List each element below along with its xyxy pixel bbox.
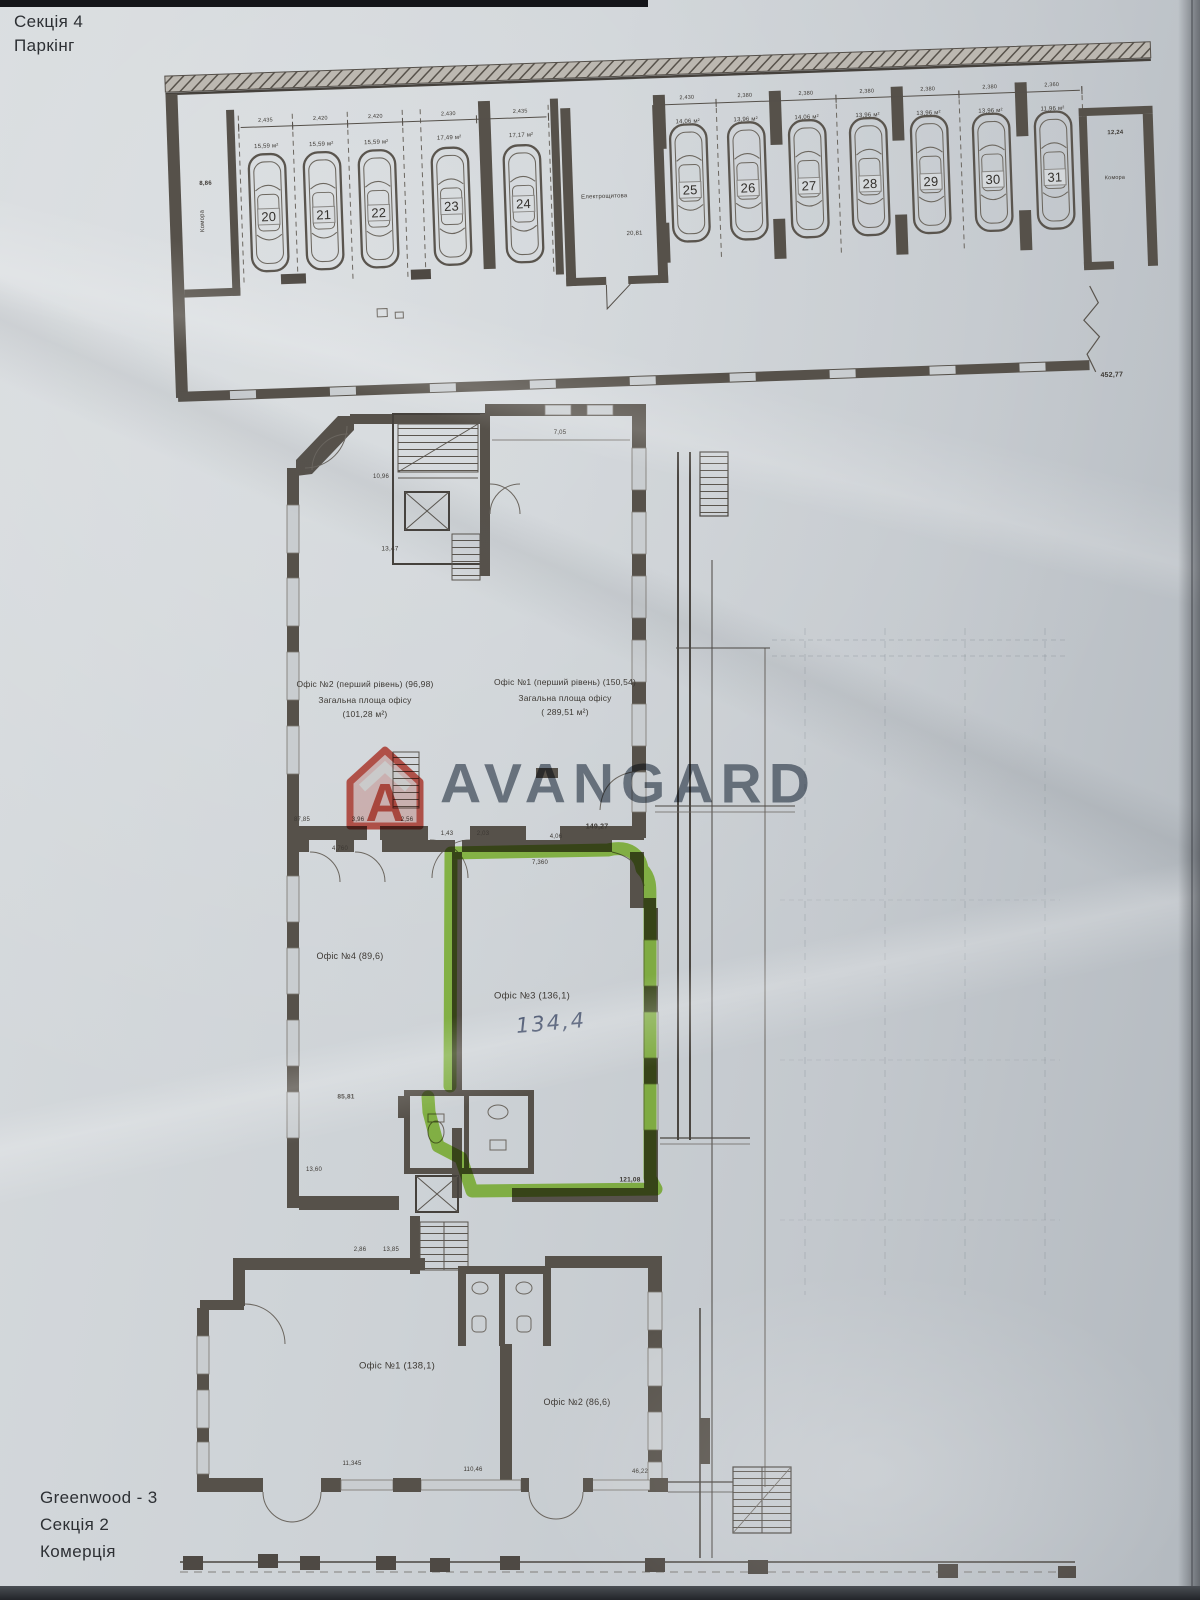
dim-mid-bottom-right: 121,08 [619,1177,640,1184]
header-section: Секція 4 [14,12,83,32]
footer-section: Секція 2 [40,1515,109,1535]
dim-low-top-a: 2,86 [354,1247,366,1253]
door-swing [490,484,520,514]
watermark-brand-text: AVANGARD [440,757,817,812]
car-icon [789,120,829,238]
car-icon [358,150,398,268]
ghost-showthrough-lines [772,628,1065,1295]
footer-zone: Комерція [40,1542,116,1562]
car-icon [431,147,471,265]
dim-low-top-b: 13,85 [383,1247,399,1253]
door-swing [310,852,385,882]
car-icon [850,118,890,236]
dim-mid-top: 7,360 [532,860,548,866]
site-columns [183,1554,1076,1578]
office4-label: Офіс №4 (89,6) [317,951,384,961]
office2-upper-title: Офіс №2 (перший рівень) (96,98) [296,679,433,689]
door-swing [263,1492,321,1522]
photo-edge-bottom [0,1586,1200,1600]
door-swing [529,1492,583,1519]
dim-top-right: 7,05 [554,430,566,436]
office1-upper-area: ( 289,51 м²) [541,707,588,717]
avangard-watermark: A AVANGARD [336,742,856,838]
logo-letter: A [366,773,405,830]
car-icon [670,124,710,242]
car-icon [248,154,288,272]
electrical-room [560,105,669,310]
right-gallery [180,452,1076,1578]
dim-mid-left-bottom: 85,81 [337,1094,354,1101]
car-icon [972,113,1012,231]
lower-office-block [197,1256,668,1522]
car-icon [1034,111,1074,229]
dim-mid-top-left: 4,760 [332,846,348,852]
wc-rooms-lower [458,1266,551,1346]
office2-upper-subtitle: Загальна площа офісу [318,695,411,705]
office1-lower-label: Офіс №1 (138,1) [359,1361,435,1372]
vestibule-wall [296,416,354,476]
car-icon [910,115,950,233]
dim-d1: 87,85 [294,817,310,823]
stair-core [393,414,490,580]
elevator-shaft [416,1176,458,1212]
office2-lower-label: Офіс №2 (86,6) [544,1397,611,1407]
office1-upper-subtitle: Загальна площа офісу [518,693,611,703]
avangard-logo-icon: A [336,742,434,830]
office1-upper-title: Офіс №1 (перший рівень) (150,54) [494,677,636,687]
footer-project: Greenwood - 3 [40,1488,158,1508]
car-icon [503,145,543,263]
exterior-stairs-bottom [733,1467,791,1533]
dim-left-wall: 13,47 [381,546,398,553]
header-zone: Паркінг [14,36,75,56]
photo-edge-right-line [1191,0,1193,1600]
exterior-stairs [700,452,728,516]
parking-hall [165,42,1162,404]
break-line [1083,286,1101,372]
photographed-floorplan-document: 20 21 22 23 24 15,59 м² 15,59 м² 15,59 м… [0,0,1200,1600]
car-icon [303,152,343,270]
dim-mid-left-small: 13,60 [306,1167,322,1173]
dim-low-bottom-b: 110,46 [463,1467,482,1473]
office3-label: Офіс №3 (136,1) [494,991,570,1002]
middle-office-block [287,840,658,1274]
photo-edge-right [1178,0,1200,1600]
dim-stair: 10,96 [373,474,389,480]
dim-low-bottom-c: 46,22 [632,1469,648,1475]
photo-edge-top [0,0,648,7]
office2-upper-area: (101,28 м²) [343,709,388,719]
dim-low-bottom-a: 11,345 [342,1461,361,1467]
car-icon [728,122,768,240]
door-swing [245,1304,285,1344]
storage-room-right [1078,106,1158,270]
